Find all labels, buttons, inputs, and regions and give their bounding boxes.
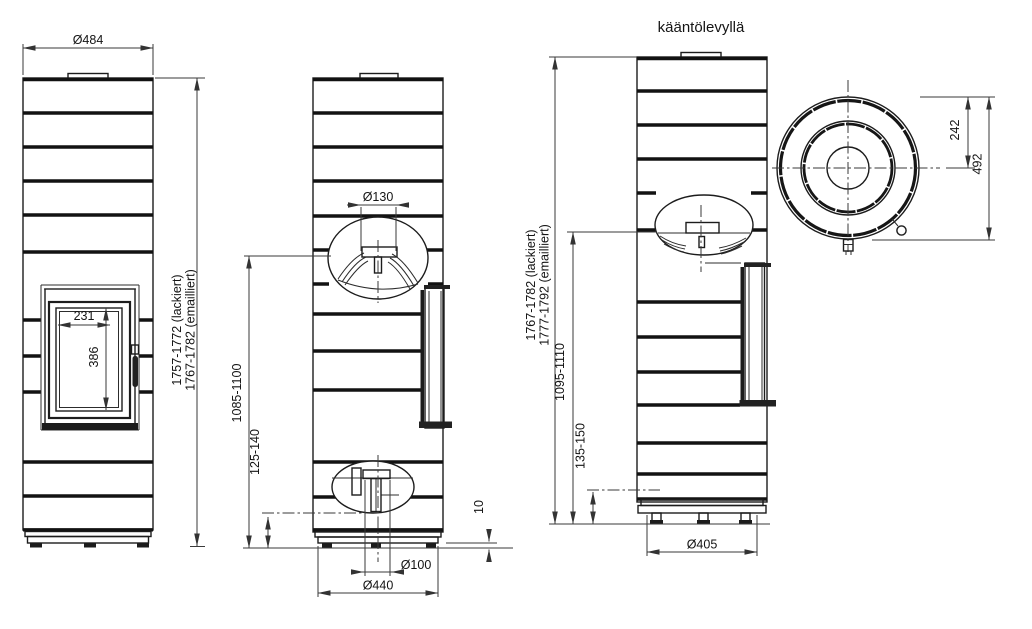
- flue-cutout: [328, 217, 428, 303]
- dim-flue-offset: 242: [948, 120, 962, 141]
- front-dimensions: Ø484 231 386 1757-1772 (lackiert) 1767-1…: [23, 33, 205, 547]
- foot: [84, 543, 96, 548]
- stove-dimension-drawing: Ø484 231 386 1757-1772 (lackiert) 1767-1…: [0, 0, 1032, 629]
- technical-drawing-page: Ø484 231 386 1757-1772 (lackiert) 1767-1…: [0, 0, 1032, 629]
- dim-rear-inlet-center-height: 135-150: [574, 423, 588, 469]
- top-view-title: kääntölevyllä: [658, 19, 745, 36]
- foot: [371, 543, 381, 548]
- dim-inlet-center-height: 125-140: [248, 429, 262, 475]
- rear-view: 1767-1782 (lackiert) 1777-1792 (emaillie…: [524, 53, 776, 557]
- rear-stone-bands: [637, 91, 767, 499]
- inlet-section-blob: [332, 461, 414, 513]
- door-sill: [42, 423, 138, 430]
- door-top-ledge: [424, 285, 450, 289]
- dim-foot-clearance: 10: [472, 500, 486, 514]
- damper-handle: [892, 219, 906, 235]
- dim-rear-height-enamelled: 1777-1792 (emailliert): [538, 224, 552, 346]
- rear-door-profile: [705, 263, 776, 407]
- air-inlet-cutout: [332, 461, 414, 513]
- dim-flue-center-height: 1085-1100: [230, 364, 244, 423]
- dim-base-diameter-405: Ø405: [687, 538, 718, 552]
- door-top-ledge: [744, 263, 771, 267]
- door-handle: [133, 356, 139, 387]
- rear-base: [638, 500, 766, 524]
- dim-front-top-diameter: Ø484: [73, 33, 104, 47]
- front-top-tab: [68, 74, 108, 79]
- side-view: Ø130 1085-1100 125-140 10 Ø100 Ø440: [230, 74, 513, 598]
- dim-base-diameter-440: Ø440: [363, 579, 394, 593]
- rear-dimensions: 1767-1782 (lackiert) 1777-1792 (emaillie…: [524, 57, 770, 556]
- foot: [426, 543, 436, 548]
- front-base: [25, 532, 151, 548]
- side-top-tab: [360, 74, 398, 79]
- foot: [137, 543, 149, 548]
- door-bottom-ledge: [740, 400, 777, 407]
- dim-flue-diameter: Ø130: [363, 190, 394, 204]
- foot: [322, 543, 332, 548]
- rotating-plate-cutout: [655, 195, 753, 272]
- dim-glass-width: 231: [74, 309, 95, 323]
- foot: [30, 543, 42, 548]
- dim-inlet-diameter: Ø100: [401, 558, 432, 572]
- dim-rear-flue-center-height: 1095-1110: [553, 343, 567, 401]
- side-door-profile: [419, 285, 452, 428]
- dim-rear-height-painted: 1767-1782 (lackiert): [524, 229, 538, 340]
- front-view: Ø484 231 386 1757-1772 (lackiert) 1767-1…: [23, 33, 205, 548]
- dim-glass-height: 386: [87, 347, 101, 368]
- dim-outer-diameter: 492: [971, 154, 985, 175]
- dim-front-height-painted: 1757-1772 (lackiert): [170, 274, 184, 385]
- rear-top-tab: [681, 53, 721, 58]
- door-bottom-ledge: [419, 422, 452, 429]
- dim-front-height-enamelled: 1767-1782 (emailliert): [184, 269, 198, 391]
